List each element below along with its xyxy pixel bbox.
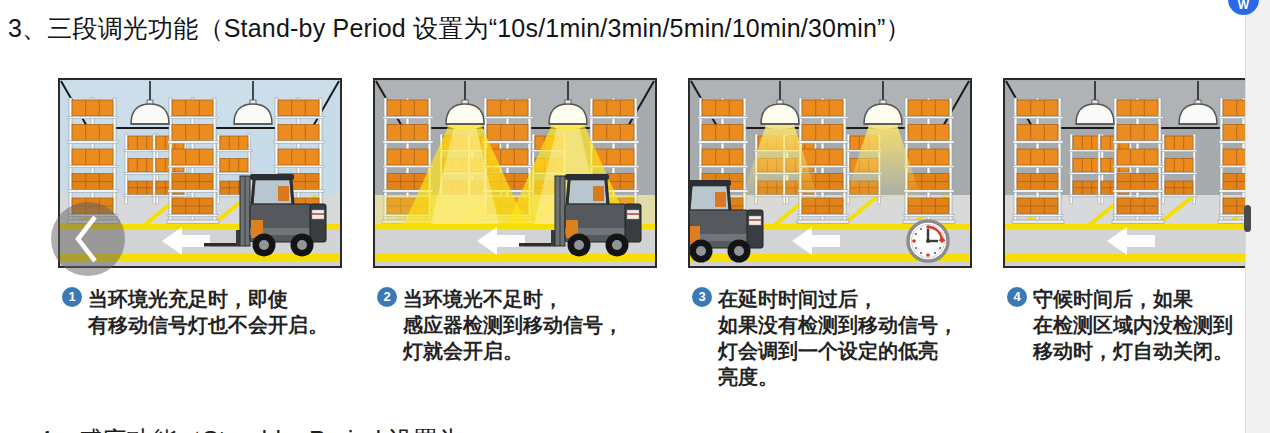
step-number-badge: 4 [1007, 287, 1027, 307]
warehouse-illustration-4 [1003, 78, 1270, 268]
caption-text: 当环境光不足时， 感应器检测到移动信号， 灯就会开启。 [403, 286, 623, 364]
step-number-badge: 3 [692, 287, 712, 307]
caption-step-3: 3 在延时时间过后， 如果没有检测到移动信号， 灯会调到一个设定的低亮 亮度。 [692, 286, 1002, 390]
carousel-previous-button[interactable] [51, 202, 125, 276]
caption-text: 当环境光充足时，即使 有移动信号灯也不会开启。 [88, 286, 328, 338]
caption-step-1: 1 当环境光充足时，即使 有移动信号灯也不会开启。 [62, 286, 372, 338]
caption-text: 守候时间后，如果 在检测区域内没检测到 移动时，灯自动关闭。 [1033, 286, 1233, 364]
caption-text: 在延时时间过后， 如果没有检测到移动信号， 灯会调到一个设定的低亮 亮度。 [718, 286, 958, 390]
step-number-badge: 2 [377, 287, 397, 307]
document-page: { "header": { "section_title": "3、三段调光功能… [0, 0, 1270, 433]
warehouse-illustration-2 [373, 78, 657, 268]
clipped-next-section-heading: 4、感应功能（Stand-by Period 设置为 [38, 424, 463, 433]
scrollbar-thumb[interactable] [1244, 205, 1251, 232]
caption-step-2: 2 当环境光不足时， 感应器检测到移动信号， 灯就会开启。 [377, 286, 687, 364]
section-heading: 3、三段调光功能（Stand-by Period 设置为“10s/1min/3m… [8, 12, 911, 45]
step-number-badge: 1 [62, 287, 82, 307]
caption-step-4: 4 守候时间后，如果 在检测区域内没检测到 移动时，灯自动关闭。 [1007, 286, 1270, 364]
warehouse-illustration-3 [688, 78, 972, 268]
